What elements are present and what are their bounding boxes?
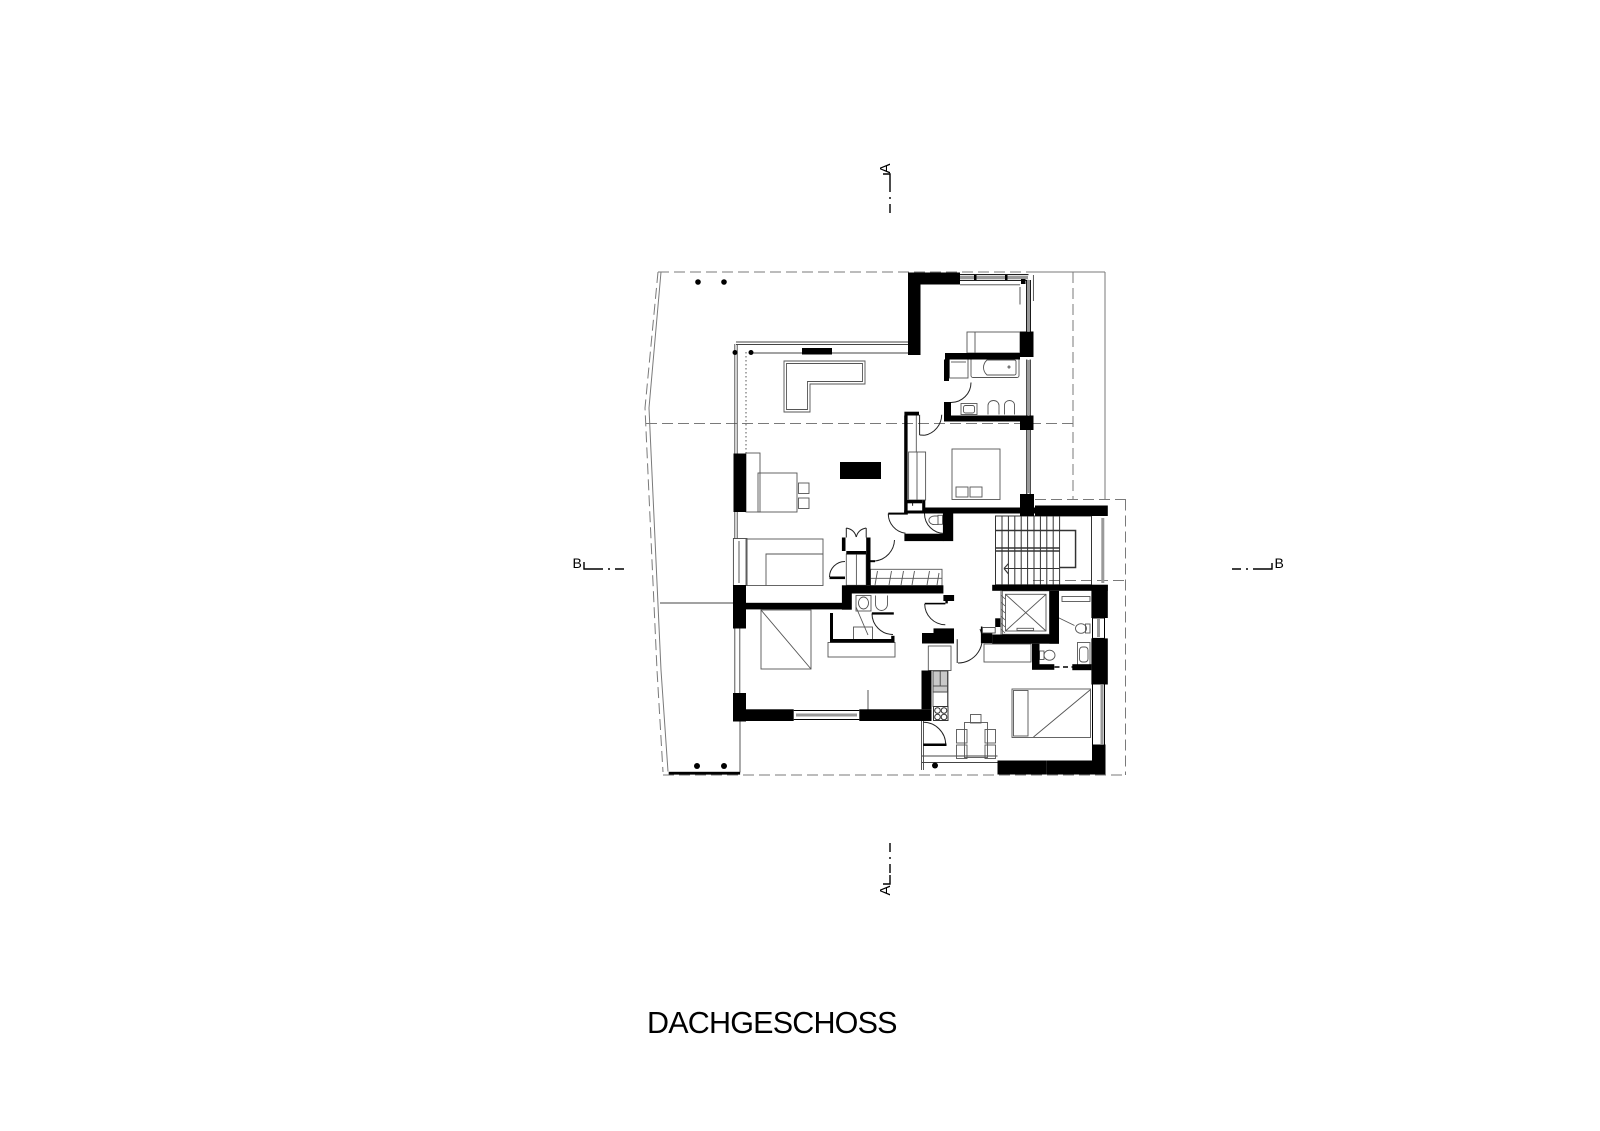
svg-text:B: B [1275,555,1284,571]
svg-text:A: A [877,163,894,173]
svg-text:DACHGESCHOSS: DACHGESCHOSS [647,1006,897,1040]
svg-text:A: A [877,885,894,895]
svg-text:B: B [573,555,582,571]
